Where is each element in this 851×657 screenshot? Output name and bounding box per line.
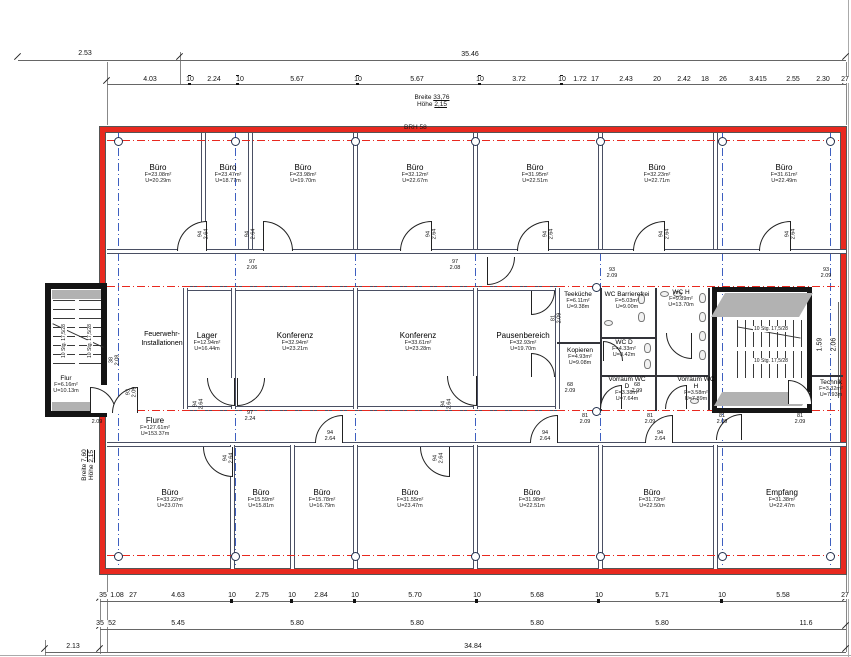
dimension-label: 27 — [128, 592, 138, 599]
stair-run-label: 10 Stg. 17,5/28 — [737, 358, 805, 364]
axis-marker — [471, 137, 480, 146]
stair-run-label: 10 Stg. 17,5/28 — [87, 313, 93, 369]
dimension-label: 2.53 — [77, 50, 93, 57]
toilet-icon — [699, 293, 706, 303]
floor-plan-canvas: 10 Stg. 17,5/28 10 Stg. 17,5/28 10 Stg. … — [0, 0, 851, 657]
dimension-label: 5.70 — [407, 592, 423, 599]
dimension-label: 10 — [557, 76, 567, 83]
axis-marker — [596, 552, 605, 561]
door-dimension: 942.64 — [655, 430, 666, 442]
dimension-line — [18, 60, 180, 61]
brh-annotation: BRH 58 — [404, 124, 427, 131]
dimension-label: 20 — [652, 76, 662, 83]
door-dimension: 812.09 — [550, 313, 562, 324]
dimension-label: 2.55 — [785, 76, 801, 83]
extension-line — [846, 62, 847, 125]
axis-marker — [592, 283, 601, 292]
dimension-line — [100, 629, 846, 630]
room-label: BüroF=23.47m²U=18.77m — [215, 163, 242, 184]
dimension-label: 2.24 — [206, 76, 222, 83]
dimension-line — [180, 60, 846, 61]
wall — [812, 375, 843, 377]
room-label: BüroF=15.59m²U=15.81m — [248, 488, 275, 509]
dimension-label: 2.75 — [254, 592, 270, 599]
dimension-line — [107, 84, 846, 85]
dimension-label: 27 — [840, 76, 850, 83]
axis-marker — [351, 552, 360, 561]
axis-marker — [596, 137, 605, 146]
door-dimension: 942.64 — [325, 430, 336, 442]
door-dimension: 972.06 — [247, 259, 258, 271]
dimension-label: 3.415 — [748, 76, 768, 83]
door-dimension: 942.64 — [222, 453, 234, 464]
door-dimension: 932.09 — [821, 267, 832, 279]
room-label: FlureF=127.61m²U=153.37m — [140, 416, 170, 437]
dimension-label: 27 — [840, 592, 850, 599]
door-dimension: 972.24 — [245, 410, 256, 422]
dimension-label: 3.72 — [511, 76, 527, 83]
dimension-label: 4.63 — [170, 592, 186, 599]
frame-edge — [848, 0, 849, 657]
stair-run-label: 10 Stg. 17,5/28 — [61, 313, 67, 369]
dimension-line — [45, 652, 100, 653]
axis-marker — [826, 552, 835, 561]
room-label: LagerF=12.94m²U=16.44m — [194, 331, 221, 352]
door-dimension: 682.09 — [565, 382, 576, 394]
axis-marker — [826, 137, 835, 146]
toilet-icon — [699, 331, 706, 341]
toilet-icon — [699, 312, 706, 322]
door-dimension: 682.09 — [632, 382, 643, 394]
wall — [598, 133, 603, 251]
axis-marker — [231, 552, 240, 561]
room-label: FlurF=6.16m²U=10.13m — [53, 375, 79, 394]
dim-tick — [14, 53, 21, 60]
door-dimension: 942.64 — [197, 229, 209, 240]
axis-marker — [114, 137, 123, 146]
dimension-line — [100, 601, 846, 602]
door-dimension: 942.64 — [540, 430, 551, 442]
dimension-label: 1.08 — [109, 592, 125, 599]
door-dimension: 942.64 — [658, 229, 670, 240]
dimension-label: 10 — [353, 76, 363, 83]
dimension-label: 35 — [95, 620, 105, 627]
wall — [600, 288, 602, 411]
room-label: BüroF=31.55m²U=23.47m — [397, 488, 424, 509]
wall — [598, 445, 603, 569]
dimension-label: 5.80 — [654, 620, 670, 627]
extension-line — [107, 574, 108, 652]
toilet-icon — [699, 350, 706, 360]
door-dimension: 932.09 — [125, 387, 137, 398]
extension-line — [846, 574, 847, 652]
dimension-label: 5.71 — [654, 592, 670, 599]
room-label: Feuerwehr-Installationen — [133, 330, 191, 348]
axis-marker — [351, 137, 360, 146]
wall — [183, 288, 188, 409]
toilet-icon — [638, 312, 645, 322]
room-label: BüroF=31.73m²U=22.50m — [639, 488, 666, 509]
door-dimension: 932.09 — [607, 267, 618, 279]
wall — [473, 445, 478, 569]
dimension-label: 10 — [472, 592, 482, 599]
dimension-label: 5.58 — [775, 592, 791, 599]
window-annotation-left: Breite 7,60 Höhe 2,15 — [81, 423, 95, 507]
dimension-label: 1.59 — [816, 338, 823, 352]
door-dimension: 812.09 — [580, 413, 591, 425]
dimension-label: 5.80 — [289, 620, 305, 627]
dimension-label: 17 — [590, 76, 600, 83]
dimension-label: 10 — [287, 592, 297, 599]
dimension-label: 34.84 — [463, 643, 483, 650]
room-label: BüroF=23.08m²U=20.29m — [145, 163, 172, 184]
stair-shading — [52, 290, 101, 299]
dimension-label: 18 — [700, 76, 710, 83]
dimension-label: 10 — [350, 592, 360, 599]
dimension-label: 35 — [98, 592, 108, 599]
dimension-label: 5.80 — [409, 620, 425, 627]
extension-line — [107, 62, 108, 125]
door-dimension: 942.64 — [244, 229, 256, 240]
axis-marker — [231, 137, 240, 146]
room-label: KonferenzF=32.94m²U=23.21m — [277, 331, 313, 352]
dimension-label: 5.80 — [529, 620, 545, 627]
wall — [713, 445, 718, 569]
wall — [353, 288, 358, 409]
dimension-label: 2.84 — [313, 592, 329, 599]
dimension-line — [100, 652, 846, 653]
dimension-label: 52 — [107, 620, 117, 627]
frame-edge — [0, 655, 851, 656]
door-dimension: 382.08 — [108, 355, 120, 366]
axis-marker — [471, 552, 480, 561]
axis-marker — [718, 137, 727, 146]
room-label: BüroF=31.61m²U=22.49m — [771, 163, 798, 184]
door-dimension: 942.64 — [542, 229, 554, 240]
room-label: BüroF=15.78m²U=16.79m — [309, 488, 336, 509]
dimension-label: 5.67 — [409, 76, 425, 83]
axis-marker — [114, 552, 123, 561]
dimension-label: 2.06 — [830, 338, 837, 352]
dimension-label: 5.67 — [289, 76, 305, 83]
room-label: KonferenzF=33.61m²U=23.28m — [400, 331, 436, 352]
room-label: BüroF=31.98m²U=22.51m — [519, 488, 546, 509]
axis-marker — [718, 552, 727, 561]
toilet-icon — [644, 343, 651, 353]
stair-run-label: 10 Stg. 17,5/28 — [737, 326, 805, 332]
dimension-label: 4.03 — [142, 76, 158, 83]
wall — [107, 249, 846, 254]
dimension-label: 2.30 — [815, 76, 831, 83]
wall — [713, 133, 718, 251]
room-label: BüroF=31.95m²U=22.51m — [522, 163, 549, 184]
room-label: PausenbereichF=32.93m²U=19.70m — [496, 331, 549, 352]
axis-marker — [592, 407, 601, 416]
wall — [557, 342, 600, 344]
door-dimension: 812.09 — [795, 413, 806, 425]
window-annotation: Breite 33,76 Höhe 2,15 — [382, 94, 482, 108]
door-dimension: 942.64 — [440, 399, 452, 410]
room-label: WC BarrierefreiF=5.03m²U=9.00m — [603, 291, 651, 310]
dimension-label: 10 — [235, 76, 245, 83]
dimension-label: 11.6 — [798, 620, 813, 627]
dimension-label: 10 — [185, 76, 195, 83]
wall — [655, 288, 657, 411]
door-dimension: 942.64 — [432, 453, 444, 464]
room-label: TechnikF=3.32m²U=7.93m — [819, 379, 843, 398]
door-dimension: 972.08 — [450, 259, 461, 271]
dimension-label: 2.43 — [618, 76, 634, 83]
room-label: Vorraum WC HF=3.58m²U=7.89m — [675, 376, 717, 402]
wall — [473, 133, 478, 251]
wall — [353, 445, 358, 569]
sink-icon — [604, 320, 613, 326]
toilet-icon — [644, 359, 651, 369]
dimension-label: 2.42 — [676, 76, 692, 83]
dimension-label: 10 — [475, 76, 485, 83]
room-label: EmpfangF=31.38m²U=22.47m — [766, 488, 798, 509]
dimension-label: 35.46 — [460, 51, 480, 58]
dimension-label: 2.13 — [65, 643, 81, 650]
room-label: KopierenF=4.93m²U=9.08m — [567, 347, 593, 366]
room-label: BüroF=33.22m²U=23.07m — [157, 488, 184, 509]
dimension-label: 26 — [718, 76, 728, 83]
door-dimension: 942.64 — [192, 399, 204, 410]
wall — [353, 133, 358, 251]
room-label: BüroF=32.23m²U=22.71m — [644, 163, 671, 184]
door-dimension: 942.64 — [784, 229, 796, 240]
door-dimension: 812.09 — [645, 413, 656, 425]
dimension-label: 10 — [594, 592, 604, 599]
extension-line — [180, 52, 181, 84]
room-label: TeekücheF=6.11m²U=9.38m — [564, 291, 592, 310]
door-dimension: 812.09 — [717, 413, 728, 425]
wall — [290, 445, 295, 569]
room-label: BüroF=23.98m²U=19.70m — [290, 163, 317, 184]
dimension-label: 10 — [227, 592, 237, 599]
room-label: WC HF=9.89m²U=13.70m — [668, 289, 694, 308]
stair-shading — [711, 293, 813, 317]
dimension-label: 5.45 — [170, 620, 186, 627]
room-label: BüroF=32.12m²U=22.67m — [402, 163, 429, 184]
dimension-label: 1.72 — [572, 76, 588, 83]
dimension-label: 5.68 — [529, 592, 545, 599]
wall — [555, 288, 560, 409]
room-label: WC DF=4.33m²U=8.42m — [612, 339, 636, 358]
door-dimension: 942.64 — [425, 229, 437, 240]
dimension-label: 10 — [717, 592, 727, 599]
stair-flight — [737, 351, 805, 378]
